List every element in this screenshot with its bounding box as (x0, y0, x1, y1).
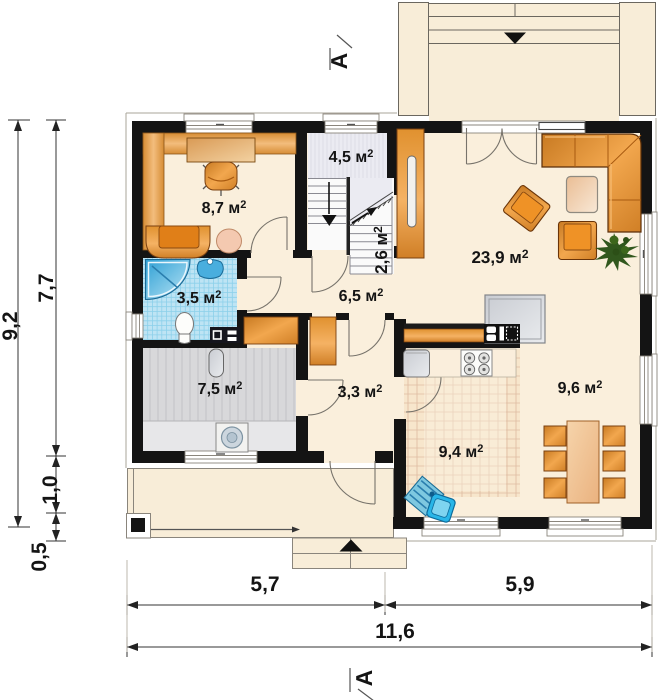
svg-text:4,5 м2: 4,5 м2 (329, 148, 374, 166)
svg-text:5,7: 5,7 (250, 573, 279, 596)
svg-text:0,5: 0,5 (28, 542, 51, 572)
svg-text:2,6 м2: 2,6 м2 (371, 226, 391, 274)
svg-text:3,3 м2: 3,3 м2 (338, 383, 383, 401)
svg-text:9,6 м2: 9,6 м2 (558, 379, 603, 397)
svg-text:1,0: 1,0 (39, 475, 62, 504)
svg-text:23,9 м2: 23,9 м2 (471, 247, 528, 267)
svg-text:A: A (326, 53, 352, 70)
svg-text:9,4 м2: 9,4 м2 (439, 443, 484, 461)
svg-text:7,5 м2: 7,5 м2 (198, 380, 243, 398)
svg-text:7,7: 7,7 (35, 273, 58, 302)
svg-text:8,7 м2: 8,7 м2 (202, 199, 247, 217)
svg-text:11,6: 11,6 (375, 620, 415, 643)
svg-text:A: A (351, 670, 377, 687)
svg-text:9,2: 9,2 (0, 311, 22, 340)
svg-text:3,5 м2: 3,5 м2 (177, 289, 222, 307)
svg-text:6,5 м2: 6,5 м2 (339, 287, 384, 305)
svg-text:5,9: 5,9 (505, 573, 534, 596)
